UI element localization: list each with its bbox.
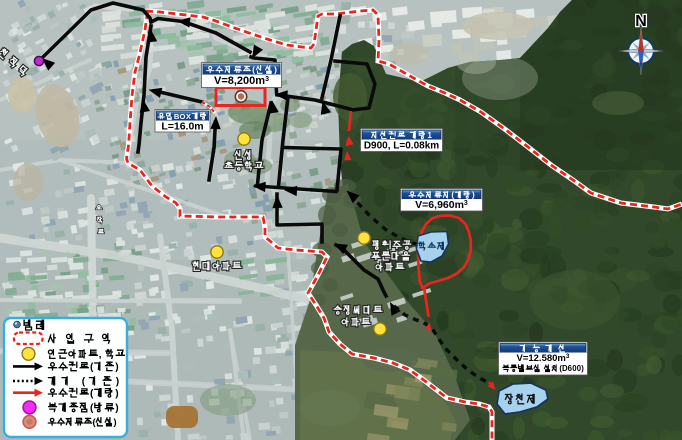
svg-text:): )	[115, 403, 118, 414]
svg-text:(: (	[90, 388, 94, 399]
svg-text:(: (	[90, 362, 94, 373]
svg-text:L=16.0m: L=16.0m	[161, 120, 203, 132]
svg-text:,: ,	[99, 350, 102, 361]
svg-text:N: N	[635, 13, 647, 30]
svg-text:(: (	[252, 65, 255, 75]
svg-text:): )	[114, 417, 117, 427]
svg-text:): )	[472, 191, 475, 200]
svg-text:): )	[581, 364, 584, 373]
svg-text:(: (	[90, 403, 94, 414]
svg-text:V=6,960m3: V=6,960m3	[415, 199, 468, 211]
svg-text:(: (	[82, 377, 86, 388]
svg-text:1: 1	[427, 131, 432, 140]
svg-text:V=12.580m3: V=12.580m3	[516, 353, 569, 364]
svg-text:): )	[115, 388, 118, 399]
svg-text:V=8,200m3: V=8,200m3	[214, 75, 269, 87]
svg-text:): )	[116, 377, 119, 388]
svg-text:): )	[274, 65, 277, 75]
svg-text:): )	[115, 362, 118, 373]
svg-text:D900, L=0.08km: D900, L=0.08km	[364, 140, 439, 151]
